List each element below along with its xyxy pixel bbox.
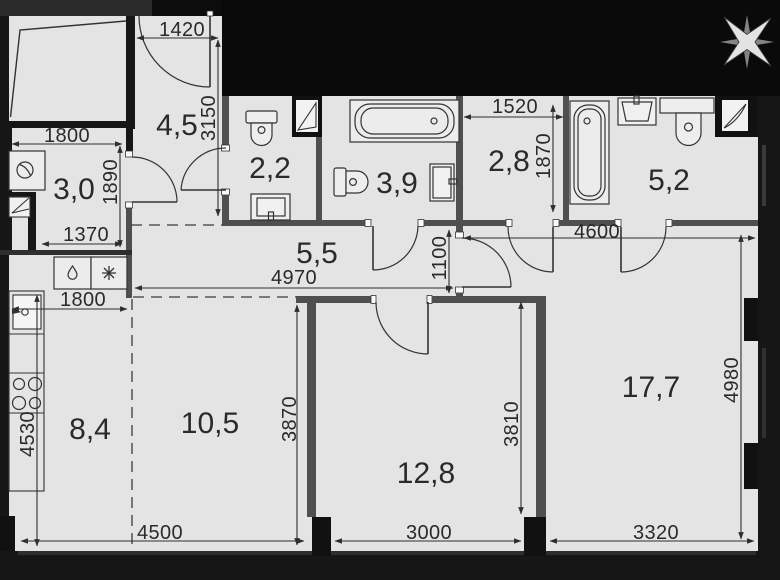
svg-text:3,9: 3,9	[376, 167, 418, 200]
svg-text:1370: 1370	[63, 224, 109, 246]
svg-text:5,2: 5,2	[648, 164, 690, 197]
svg-text:1800: 1800	[44, 125, 90, 147]
svg-text:1100: 1100	[429, 236, 451, 281]
svg-text:3150: 3150	[198, 95, 220, 141]
svg-text:8,4: 8,4	[69, 413, 111, 446]
svg-text:4,5: 4,5	[156, 109, 198, 142]
svg-text:4500: 4500	[137, 522, 183, 544]
svg-text:2,2: 2,2	[249, 152, 291, 185]
svg-text:5,5: 5,5	[296, 237, 338, 270]
svg-text:3000: 3000	[406, 522, 452, 544]
svg-text:3870: 3870	[279, 396, 301, 442]
svg-text:1520: 1520	[492, 96, 538, 118]
svg-text:17,7: 17,7	[622, 371, 680, 404]
svg-text:2,8: 2,8	[488, 145, 530, 178]
svg-text:4600: 4600	[574, 221, 620, 243]
svg-text:1800: 1800	[60, 289, 106, 311]
svg-text:1890: 1890	[100, 159, 122, 205]
svg-text:1870: 1870	[533, 133, 555, 179]
svg-text:12,8: 12,8	[397, 457, 455, 490]
svg-text:10,5: 10,5	[181, 407, 239, 440]
svg-text:4980: 4980	[721, 357, 743, 403]
svg-text:4530: 4530	[17, 411, 39, 457]
svg-text:4970: 4970	[271, 267, 317, 289]
svg-text:3320: 3320	[633, 522, 679, 544]
svg-text:3,0: 3,0	[53, 173, 95, 206]
svg-text:1420: 1420	[159, 19, 205, 41]
svg-text:3810: 3810	[501, 401, 523, 447]
